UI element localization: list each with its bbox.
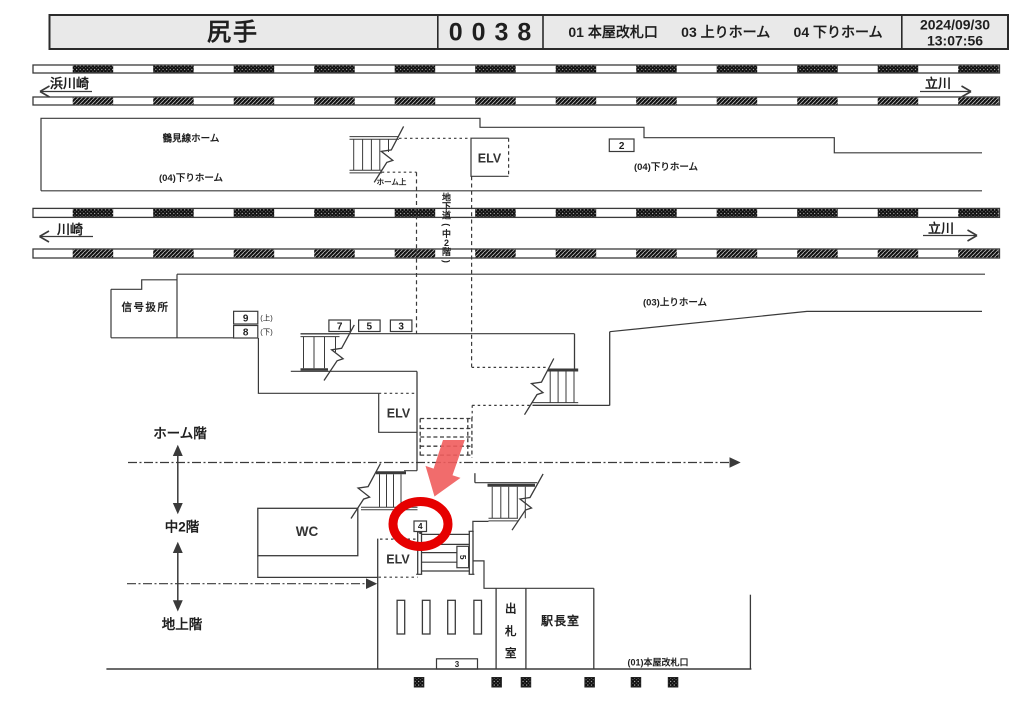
svg-text:9: 9: [243, 313, 249, 324]
svg-text:中2階: 中2階: [165, 519, 200, 535]
svg-text:13:07:56: 13:07:56: [927, 33, 983, 49]
svg-text:ELV: ELV: [386, 553, 410, 567]
svg-text:川崎: 川崎: [56, 222, 83, 237]
svg-text:2024/09/30: 2024/09/30: [920, 17, 990, 33]
svg-text:ホーム階: ホーム階: [153, 425, 207, 441]
svg-text:出: 出: [505, 602, 517, 616]
svg-text:(04)下りホーム: (04)下りホーム: [634, 162, 699, 173]
svg-text:(上): (上): [260, 314, 273, 323]
svg-text:4: 4: [418, 521, 423, 531]
svg-text:浜川崎: 浜川崎: [50, 76, 89, 91]
svg-text:地上階: 地上階: [162, 616, 203, 632]
svg-text:道: 道: [442, 210, 451, 221]
svg-text:WC: WC: [296, 524, 319, 539]
svg-text:(下): (下): [260, 328, 273, 337]
svg-text:8: 8: [243, 327, 249, 338]
svg-text:): ): [442, 260, 452, 263]
svg-text:(01)本屋改札口: (01)本屋改札口: [627, 657, 688, 668]
svg-text:札: 札: [504, 624, 517, 638]
svg-text:立川: 立川: [928, 221, 954, 236]
svg-text:鶴見線ホーム: 鶴見線ホーム: [163, 133, 220, 145]
svg-text:階: 階: [442, 246, 451, 257]
svg-text:3: 3: [455, 660, 460, 669]
svg-text:(03)上りホーム: (03)上りホーム: [643, 297, 708, 309]
svg-text:7: 7: [337, 321, 343, 332]
svg-text:ELV: ELV: [387, 407, 411, 421]
svg-text:3: 3: [398, 321, 404, 332]
svg-text:尻手: 尻手: [207, 18, 259, 46]
svg-text:5: 5: [458, 555, 468, 560]
svg-text:0038: 0038: [449, 19, 541, 47]
svg-text:ホーム上: ホーム上: [377, 176, 407, 186]
svg-text:5: 5: [367, 321, 373, 332]
svg-text:01 本屋改札口 03 上りホーム 04: 01 本屋改札口 03 上りホーム 04 下りホーム: [568, 24, 882, 40]
svg-text:信号扱所: 信号扱所: [122, 301, 170, 314]
svg-text:駅長室: 駅長室: [540, 613, 580, 628]
svg-text:室: 室: [505, 646, 517, 660]
svg-text:ELV: ELV: [478, 152, 502, 166]
svg-text:2: 2: [619, 141, 625, 152]
svg-text:(: (: [442, 223, 452, 226]
svg-text:立川: 立川: [925, 76, 951, 91]
svg-text:(04)下りホーム: (04)下りホーム: [159, 173, 224, 184]
